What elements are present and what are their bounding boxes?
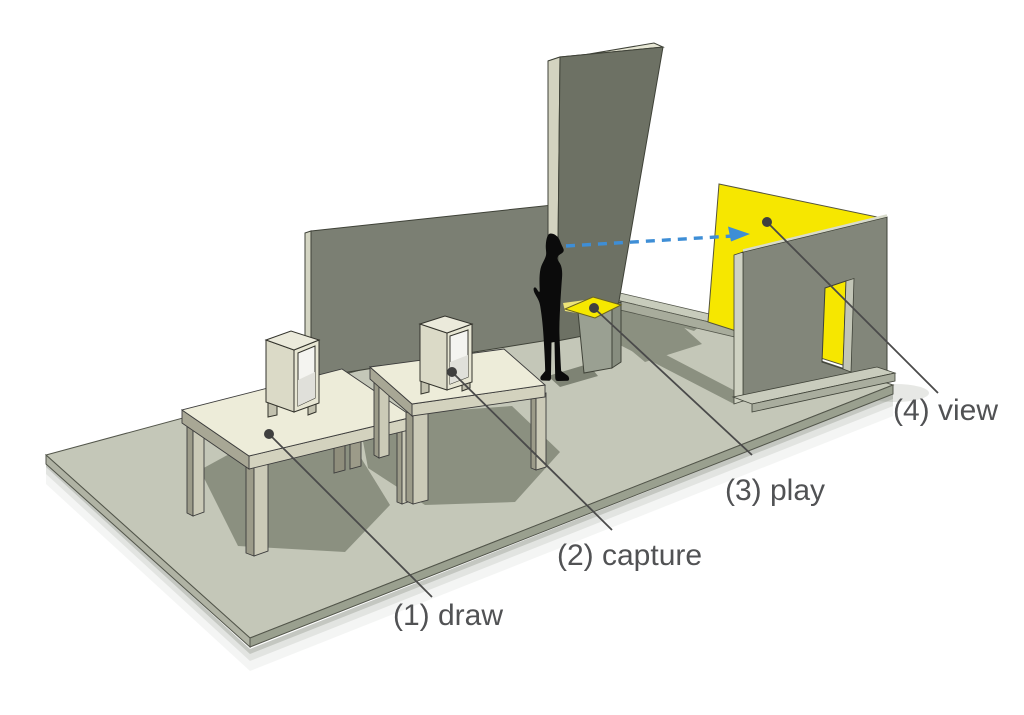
anchor-dot-capture — [447, 367, 457, 377]
anchor-dot-draw — [264, 429, 274, 439]
installation-diagram: (1) draw (2) capture (3) play (4) view — [0, 0, 1024, 715]
station-label-capture: (2) capture — [557, 539, 702, 572]
station-label-view: (4) view — [893, 394, 998, 427]
station-label-draw: (1) draw — [393, 599, 503, 632]
frame-2-side — [420, 324, 447, 390]
station-label-play: (3) play — [725, 474, 825, 507]
drawing-frame-1 — [266, 331, 319, 417]
monolith — [548, 43, 663, 343]
anchor-dot-view — [762, 217, 772, 227]
diagram-canvas: (1) draw (2) capture (3) play (4) view — [0, 0, 1024, 715]
anchor-dot-play — [589, 303, 599, 313]
capture-frame-2 — [420, 316, 472, 394]
monolith-front — [557, 47, 663, 341]
frame-1-side — [266, 340, 294, 412]
pedestal-side — [612, 302, 621, 368]
gallery-wall-edge — [734, 252, 743, 404]
